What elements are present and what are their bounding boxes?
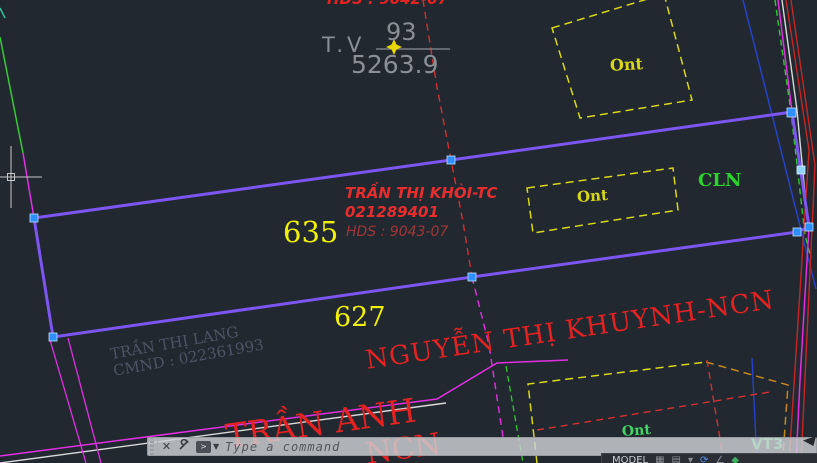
command-prompt-icon[interactable]: > [196,441,211,453]
command-input[interactable]: Type a command [225,440,340,454]
parcel-93-area: 5263.9 [351,51,438,80]
wrench-glyph [178,439,190,451]
grip-topright[interactable] [787,108,796,117]
parcel-635-hds: HDS : 9043-07 [346,224,448,240]
grip-bottomright-1[interactable] [805,223,813,231]
landuse-ont-label-top: Ont [610,55,644,75]
command-bar-drag-handle[interactable] [148,438,158,455]
model-button[interactable]: MODEL [612,456,648,463]
autocad-model-space: HDS : 9042-07 T.V 93 5263.9 TRẦN THỊ KHÒ… [0,0,817,463]
parcel-635-owner: TRẦN THỊ KHÒI-TC [345,185,498,202]
status-bar: MODEL ▦ ▤ ▾ ⟳ ∠ ◆ [601,453,817,463]
parcel-635-owner-id: 021289401 [345,204,439,221]
close-icon[interactable]: ✕ [158,440,175,453]
dynamic-ucs-icon[interactable]: ⟳ [700,456,708,463]
grip-bottomright-2[interactable] [793,228,801,236]
grip-bottomleft[interactable] [49,333,57,341]
corner-tick-line [0,8,5,18]
polar-tracking-icon[interactable]: ∠ [715,456,724,463]
green-boundary-line [0,37,23,153]
snap-icon[interactable]: ▤ [672,456,681,463]
blue-boundary-line [743,0,816,289]
grid-icon[interactable]: ▦ [655,456,664,463]
chevron-down-icon[interactable]: ▾ [688,456,693,463]
grip-right-mid-hover[interactable] [797,166,805,174]
red-dashed-bottom-1 [537,392,770,430]
chevron-down-icon[interactable]: ▼ [213,442,219,451]
parcel-627-number: 627 [334,302,386,333]
grip-top-mid[interactable] [447,156,455,164]
grip-topleft[interactable] [30,214,38,222]
parcel-635-number: 635 [283,216,338,249]
magenta-side-line-1 [50,340,86,463]
hds-label-top: HDS : 9042-07 [327,0,448,8]
osnap-icon[interactable]: ◆ [731,456,739,463]
magenta-connector-line [23,153,34,218]
landuse-ont-label-mid: Ont [576,187,608,206]
landuse-cln-label: CLN [698,171,741,192]
grip-bottom-mid[interactable] [468,273,476,281]
crosshair-cursor[interactable] [0,146,42,208]
customize-wrench-icon[interactable] [175,439,192,454]
parcel-93-number: 93 [386,19,417,47]
